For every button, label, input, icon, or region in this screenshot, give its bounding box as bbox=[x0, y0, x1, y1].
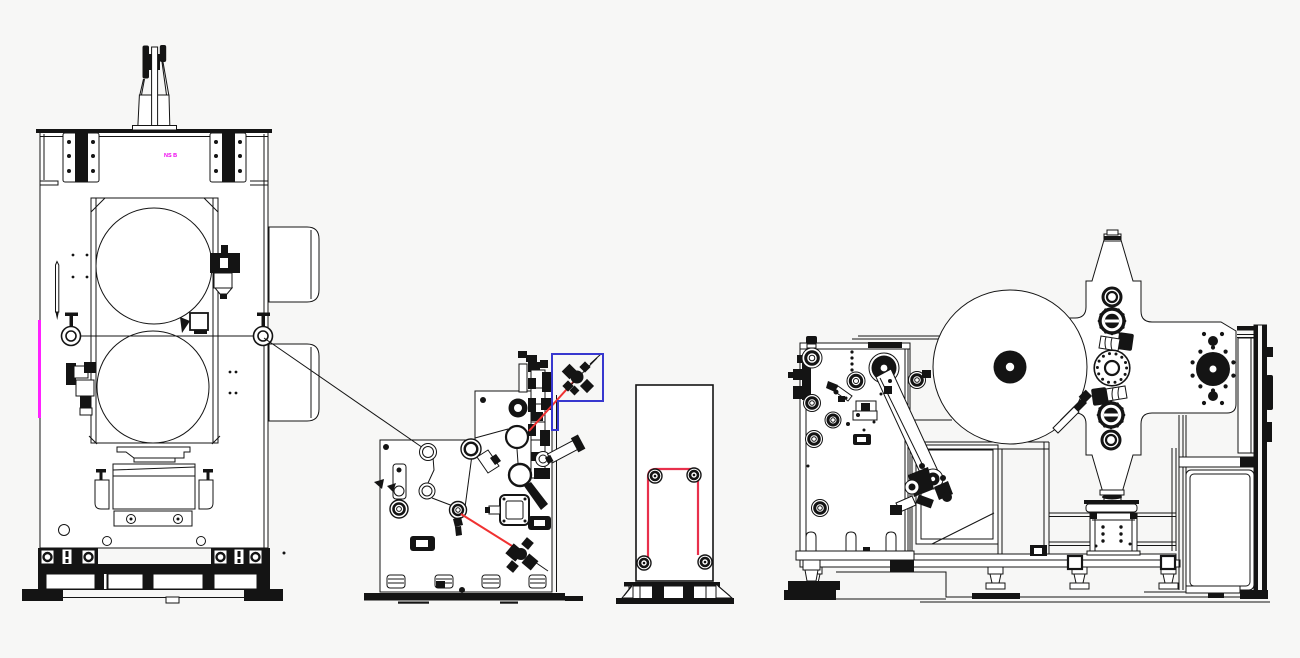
svg-text:NS B: NS B bbox=[164, 153, 177, 159]
